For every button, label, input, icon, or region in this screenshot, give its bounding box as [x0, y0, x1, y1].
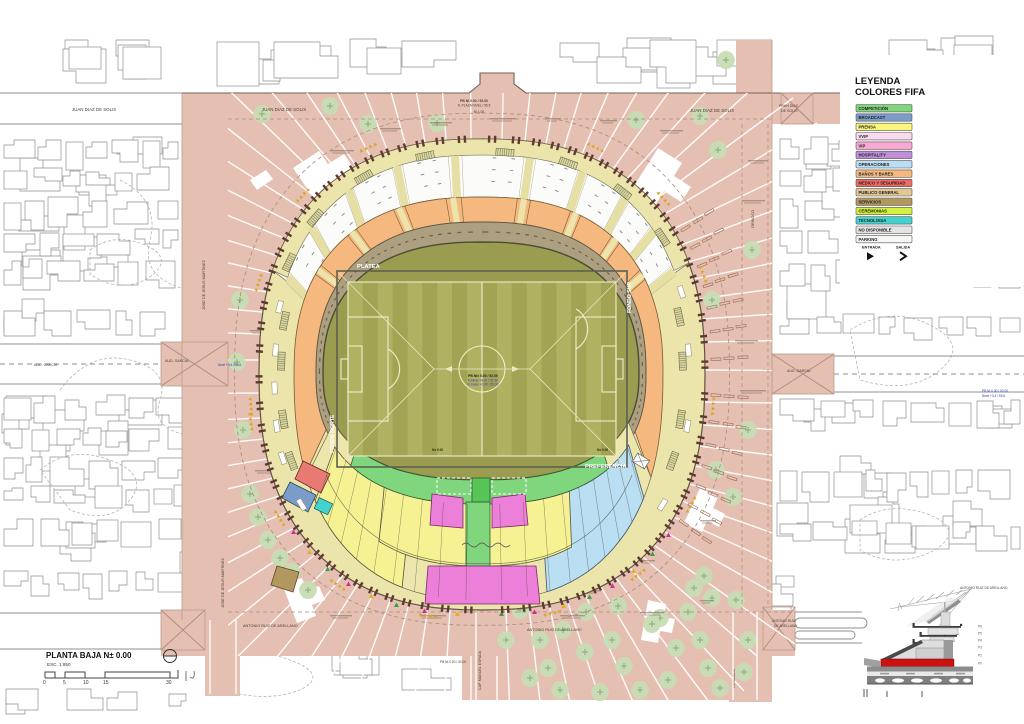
- svg-text:0: 0: [43, 680, 46, 686]
- svg-text:NI 1.00: NI 1.00: [474, 110, 485, 114]
- svg-text:OPERACIONES: OPERACIONES: [859, 162, 890, 167]
- svg-text:PB NI 0.00 / 52.00: PB NI 0.00 / 52.00: [982, 389, 1008, 393]
- svg-text:NO DISPONIBLE: NO DISPONIBLE: [859, 227, 892, 232]
- svg-text:N. PLAZA NIVEL / 56.5: N. PLAZA NIVEL / 56.5: [458, 104, 491, 108]
- svg-text:ANTONIO RUIZ DE ARELLANO: ANTONIO RUIZ DE ARELLANO: [243, 624, 298, 628]
- svg-text:PB NI 0.00 / 52.00: PB NI 0.00 / 52.00: [460, 99, 488, 103]
- svg-text:BAÑOS Y BARES: BAÑOS Y BARES: [859, 171, 894, 176]
- svg-text:PARKING: PARKING: [859, 237, 878, 242]
- svg-text:P4: P4: [978, 639, 982, 643]
- svg-text:P6: P6: [978, 625, 982, 629]
- svg-text:ESC. 1:850: ESC. 1:850: [47, 662, 71, 667]
- svg-text:P3: P3: [978, 646, 982, 650]
- svg-text:5: 5: [63, 680, 66, 686]
- svg-text:AUD. GARCIA: AUD. GARCIA: [165, 359, 189, 363]
- svg-text:Nivel +3.4 / 55.6: Nivel +3.4 / 55.6: [218, 363, 241, 367]
- svg-text:CEREMONIAS: CEREMONIAS: [859, 209, 888, 214]
- svg-text:PLATEA: PLATEA: [357, 264, 381, 270]
- svg-text:BROADCAST: BROADCAST: [859, 115, 886, 120]
- svg-text:PREFERENCIA: PREFERENCIA: [585, 464, 627, 470]
- svg-text:ANTONIO RUIZ DE ARELLANO: ANTONIO RUIZ DE ARELLANO: [527, 628, 582, 632]
- svg-text:15: 15: [103, 680, 109, 686]
- svg-text:ENTRADA: ENTRADA: [862, 246, 881, 250]
- svg-text:JOSE DE JESUS MARTINEZ: JOSE DE JESUS MARTINEZ: [221, 557, 225, 608]
- svg-text:Nivel +3.4 / 55.6: Nivel +3.4 / 55.6: [982, 394, 1005, 398]
- svg-text:P5: P5: [978, 632, 982, 636]
- svg-text:N± 0.00: N± 0.00: [597, 448, 608, 452]
- svg-text:DE SOLIS: DE SOLIS: [781, 109, 798, 113]
- svg-text:SERVICIOS: SERVICIOS: [859, 199, 882, 204]
- svg-text:VIP: VIP: [859, 143, 866, 148]
- svg-text:30: 30: [166, 680, 172, 686]
- svg-text:P0: P0: [978, 662, 982, 666]
- svg-text:N± 0.00: N± 0.00: [432, 448, 443, 452]
- svg-text:JUAN DIAZ DE SOLIS: JUAN DIAZ DE SOLIS: [72, 107, 116, 112]
- svg-text:P2: P2: [978, 654, 982, 658]
- svg-text:N.Suelo +2.60 / 55.20: N.Suelo +2.60 / 55.20: [468, 383, 499, 387]
- svg-text:ANTONIO RUIZ: ANTONIO RUIZ: [772, 619, 796, 623]
- svg-text:FRAN DIAZ: FRAN DIAZ: [779, 104, 799, 108]
- svg-text:DE ARELLANO: DE ARELLANO: [774, 624, 797, 628]
- svg-text:JOSE DE JESUS MARTINEZ: JOSE DE JESUS MARTINEZ: [202, 259, 206, 310]
- svg-text:10: 10: [83, 680, 89, 686]
- svg-text:PUBLICO GENERAL: PUBLICO GENERAL: [859, 190, 900, 195]
- svg-text:TECNOLOGIA: TECNOLOGIA: [859, 218, 887, 223]
- svg-text:FONDO NORTE: FONDO NORTE: [330, 414, 336, 453]
- svg-text:CAP. MANUEL ESPADA: CAP. MANUEL ESPADA: [478, 650, 482, 690]
- svg-text:LEYENDA: LEYENDA: [855, 76, 901, 87]
- svg-text:JUAN DIAZ DE SOLIS: JUAN DIAZ DE SOLIS: [690, 108, 734, 113]
- svg-text:PB NI 0.00 / 52.00: PB NI 0.00 / 52.00: [440, 660, 466, 664]
- svg-text:COMPETICIÓN: COMPETICIÓN: [859, 106, 889, 111]
- svg-text:PLANTA BAJA N± 0.00: PLANTA BAJA N± 0.00: [46, 651, 132, 660]
- svg-text:FONDO SUR: FONDO SUR: [627, 282, 633, 313]
- svg-text:AUD. GARCIA: AUD. GARCIA: [787, 369, 811, 373]
- svg-text:ANTONIO RUIZ DE ARELLANO: ANTONIO RUIZ DE ARELLANO: [960, 586, 1008, 590]
- svg-text:VVIP: VVIP: [859, 134, 869, 139]
- svg-text:PB NI± 0.00 / 52.00: PB NI± 0.00 / 52.00: [468, 374, 498, 378]
- svg-text:MEDICO Y SEGURIDAD: MEDICO Y SEGURIDAD: [859, 181, 906, 186]
- svg-text:ORINOCO: ORINOCO: [751, 210, 755, 228]
- svg-text:PRENSA: PRENSA: [859, 125, 876, 130]
- svg-text:COLORES FIFA: COLORES FIFA: [855, 87, 925, 98]
- svg-text:HOSPITALITY: HOSPITALITY: [859, 153, 887, 158]
- svg-text:AUD. GARCIA: AUD. GARCIA: [34, 363, 58, 367]
- svg-text:JUAN DIAZ DE SOLIS: JUAN DIAZ DE SOLIS: [262, 107, 306, 112]
- svg-text:SALIDA: SALIDA: [896, 246, 910, 250]
